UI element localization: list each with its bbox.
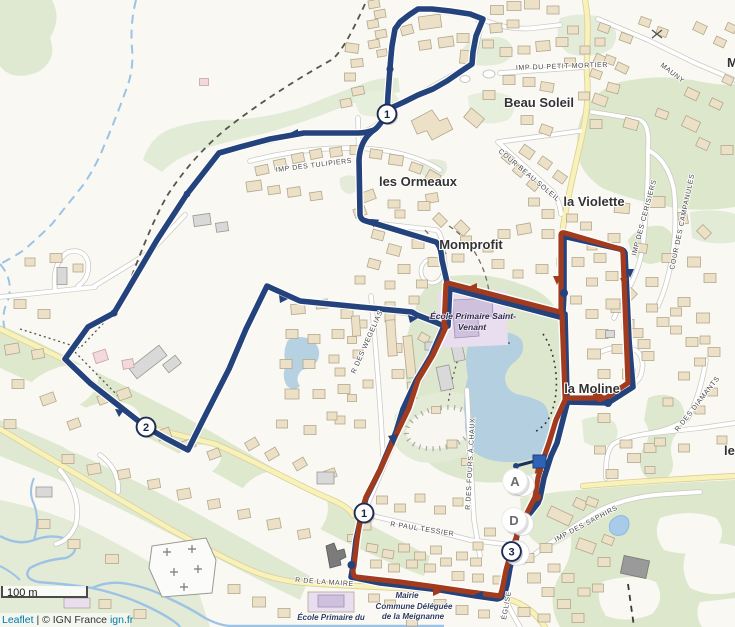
svg-text:Momprofit: Momprofit bbox=[439, 237, 503, 252]
svg-text:D: D bbox=[509, 513, 518, 528]
svg-text:les: les bbox=[724, 443, 735, 458]
svg-text:100 m: 100 m bbox=[7, 587, 38, 599]
svg-text:École Primaire Saint-: École Primaire Saint- bbox=[430, 311, 516, 321]
svg-text:2: 2 bbox=[143, 422, 149, 434]
svg-text:Mairie: Mairie bbox=[395, 591, 419, 600]
svg-text:1: 1 bbox=[384, 109, 390, 121]
svg-text:Leaflet | © IGN France ign.fr: Leaflet | © IGN France ign.fr bbox=[2, 614, 134, 626]
svg-text:3: 3 bbox=[508, 547, 514, 559]
svg-text:de la Meignanne: de la Meignanne bbox=[382, 612, 445, 621]
svg-text:la Moline: la Moline bbox=[564, 381, 620, 396]
svg-text:Ma: Ma bbox=[727, 55, 735, 70]
svg-text:Venant: Venant bbox=[458, 322, 487, 332]
svg-text:A: A bbox=[510, 474, 520, 489]
svg-text:Commune Déléguée: Commune Déléguée bbox=[376, 602, 453, 611]
svg-text:1: 1 bbox=[361, 508, 367, 520]
svg-text:École Primaire du: École Primaire du bbox=[297, 613, 365, 622]
svg-text:la Violette: la Violette bbox=[563, 194, 624, 209]
svg-text:Beau Soleil: Beau Soleil bbox=[504, 95, 574, 110]
svg-text:les Ormeaux: les Ormeaux bbox=[379, 174, 458, 189]
